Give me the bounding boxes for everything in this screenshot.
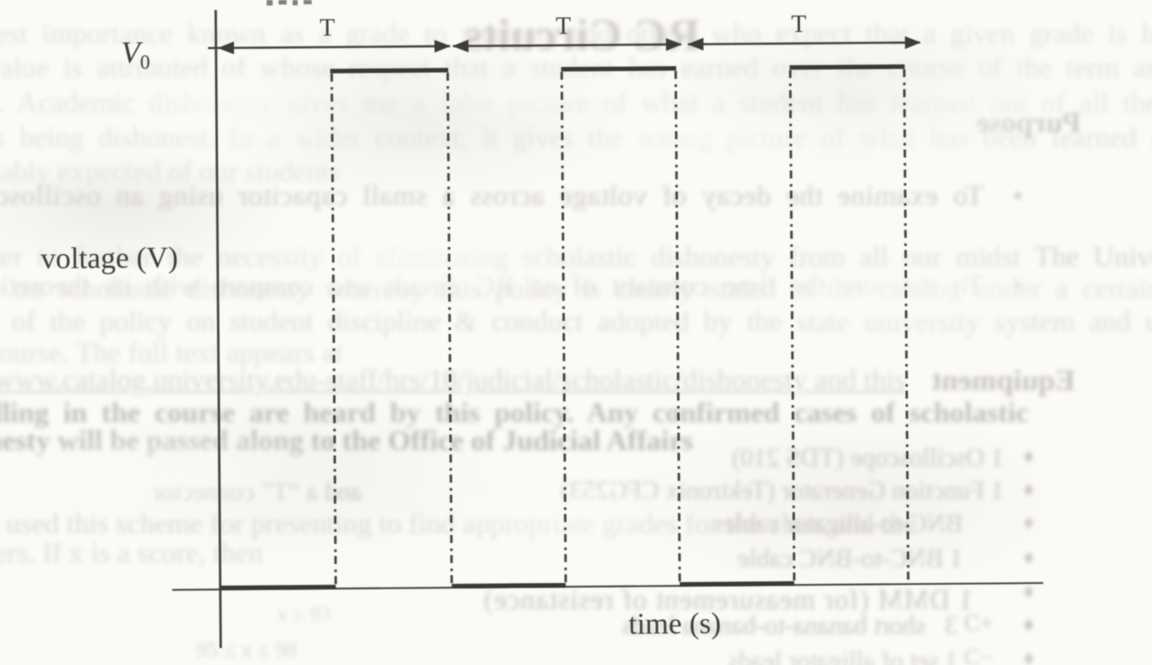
svg-text:0: 0 xyxy=(140,52,150,74)
svg-text:voltage (V): voltage (V) xyxy=(41,241,179,275)
svg-text:T: T xyxy=(320,15,335,42)
svg-text:T: T xyxy=(556,13,571,40)
svg-text:T: T xyxy=(791,11,806,38)
svg-text:time (s): time (s) xyxy=(628,607,721,641)
